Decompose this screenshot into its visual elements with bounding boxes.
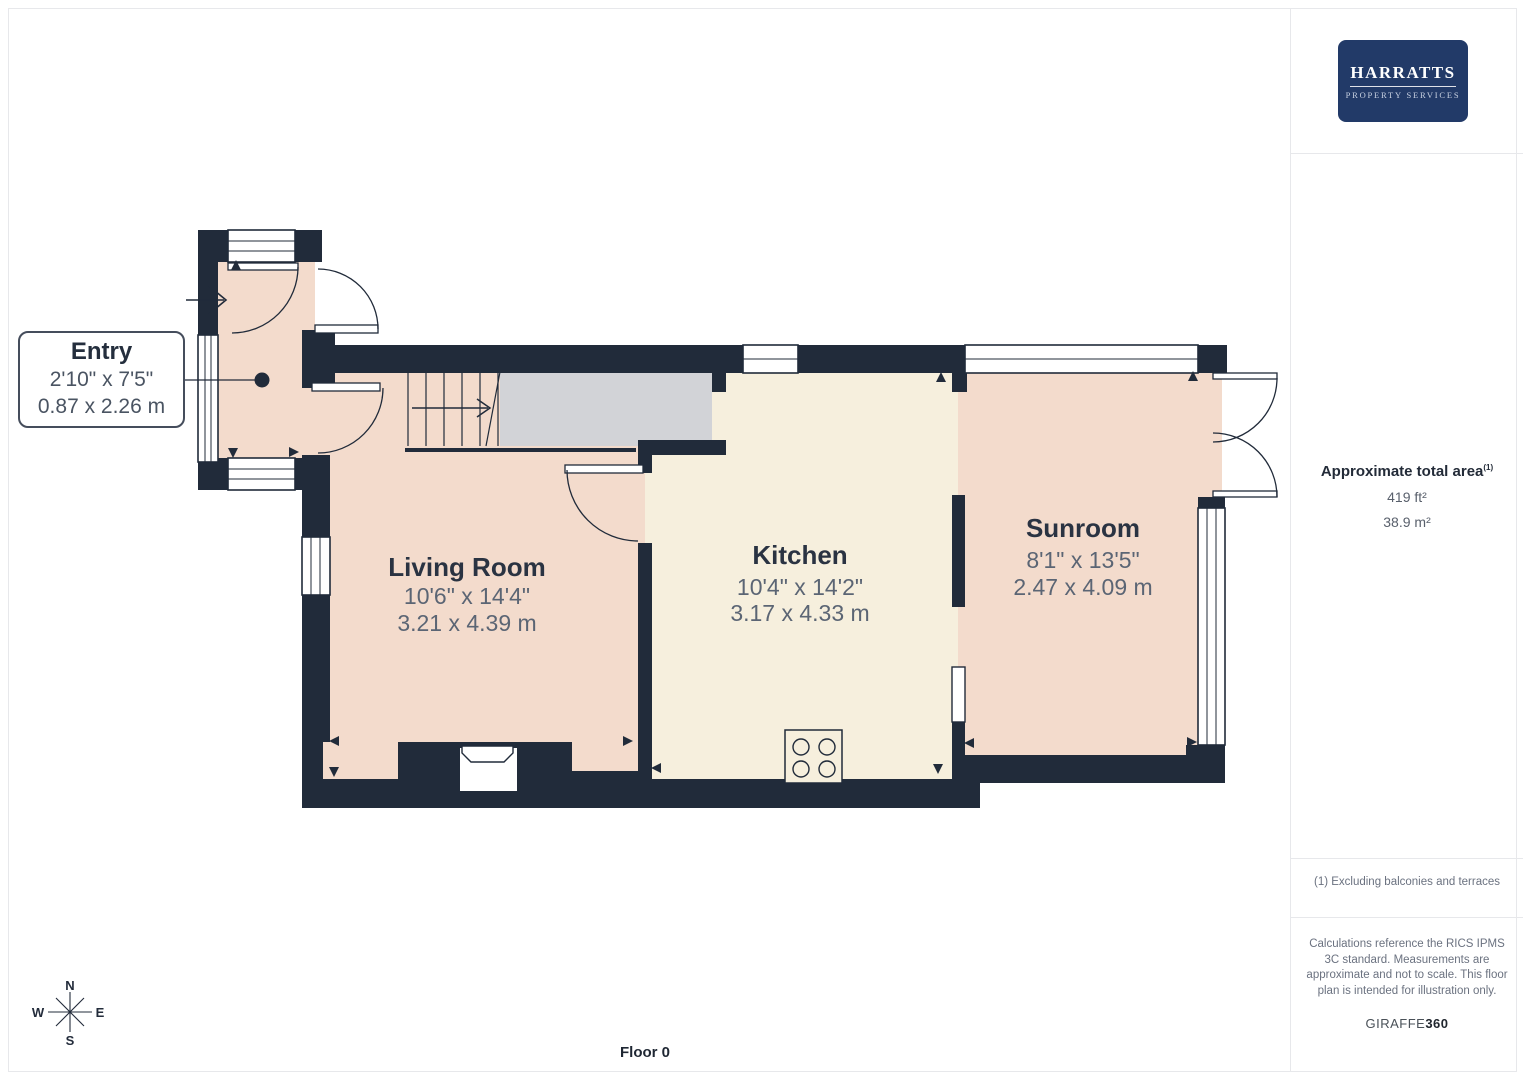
- entry-left-window: [198, 335, 218, 462]
- total-area-m: 38.9 m²: [1291, 514, 1523, 530]
- stair-rail: [405, 448, 636, 452]
- sunroom-french-doors: [1213, 373, 1277, 497]
- entry-side-door: [315, 269, 378, 333]
- alcove-right: [572, 742, 638, 771]
- room-dims-metric: 0.87 x 2.26 m: [20, 393, 183, 420]
- entry-bottom-window: [228, 458, 295, 490]
- giraffe360-brand: GIRAFFE360: [1291, 1016, 1523, 1031]
- disclaimer-block: Calculations reference the RICS IPMS 3C …: [1291, 937, 1523, 1031]
- room-name: Sunroom: [1026, 513, 1140, 543]
- sunroom-top-window: [965, 345, 1198, 373]
- compass-east-label: E: [96, 1005, 105, 1020]
- info-sidebar: HARRATTS PROPERTY SERVICES Approximate t…: [1291, 8, 1523, 1072]
- entry-room-callout: Entry 2'10" x 7'5" 0.87 x 2.26 m: [18, 331, 185, 428]
- room-dims-imperial: 2'10" x 7'5": [20, 366, 183, 393]
- disclaimer-text: Calculations reference the RICS IPMS 3C …: [1291, 937, 1523, 999]
- room-dims-metric: 2.47 x 4.09 m: [1013, 574, 1152, 600]
- total-area-footnote-marker: (1): [1483, 463, 1493, 472]
- room-dims-metric: 3.21 x 4.39 m: [397, 610, 536, 636]
- living-room-window: [302, 537, 330, 595]
- total-area-heading-text: Approximate total area: [1321, 463, 1484, 480]
- compass-icon: N S W E: [32, 978, 105, 1048]
- entry-floor: [208, 240, 315, 475]
- compass-west-label: W: [32, 1005, 45, 1020]
- room-dims-metric: 3.17 x 4.33 m: [730, 600, 869, 626]
- area-footnote: (1) Excluding balconies and terraces: [1291, 876, 1523, 888]
- compass-north-label: N: [65, 978, 74, 993]
- sunroom-right-window: [1198, 508, 1225, 745]
- room-dims-imperial: 10'6" x 14'4": [404, 583, 530, 609]
- room-label-living-room: Living Room 10'6" x 14'4" 3.21 x 4.39 m: [388, 552, 545, 636]
- room-name: Living Room: [388, 552, 545, 582]
- total-area-block: Approximate total area(1) 419 ft² 38.9 m…: [1291, 463, 1523, 530]
- room-dims-imperial: 10'4" x 14'2": [737, 574, 863, 600]
- fireplace-hearth-icon: [462, 746, 513, 762]
- floor-label: Floor 0: [0, 1044, 1290, 1061]
- giraffe360-brand-name: GIRAFFE: [1365, 1016, 1425, 1031]
- total-area-ft: 419 ft²: [1291, 489, 1523, 505]
- agency-logo: HARRATTS PROPERTY SERVICES: [1338, 40, 1468, 122]
- kitchen-window: [743, 345, 798, 373]
- room-dims-imperial: 8'1" x 13'5": [1026, 547, 1139, 573]
- total-area-heading: Approximate total area(1): [1291, 463, 1523, 480]
- room-name: Entry: [20, 338, 183, 366]
- floorplan-area: Living Room 10'6" x 14'4" 3.21 x 4.39 m …: [0, 0, 1290, 1080]
- agency-logo-name: HARRATTS: [1350, 63, 1455, 87]
- room-label-sunroom: Sunroom 8'1" x 13'5" 2.47 x 4.09 m: [1013, 513, 1152, 600]
- room-name: Kitchen: [752, 540, 847, 570]
- giraffe360-brand-number: 360: [1425, 1016, 1448, 1031]
- stair-landing: [500, 372, 712, 446]
- stove-icon: [785, 730, 842, 783]
- entry-top-window: [228, 230, 295, 262]
- floorplan-svg: Living Room 10'6" x 14'4" 3.21 x 4.39 m …: [0, 0, 1290, 1080]
- agency-logo-tagline: PROPERTY SERVICES: [1346, 90, 1461, 100]
- kitchen-sunroom-opening: [952, 667, 965, 722]
